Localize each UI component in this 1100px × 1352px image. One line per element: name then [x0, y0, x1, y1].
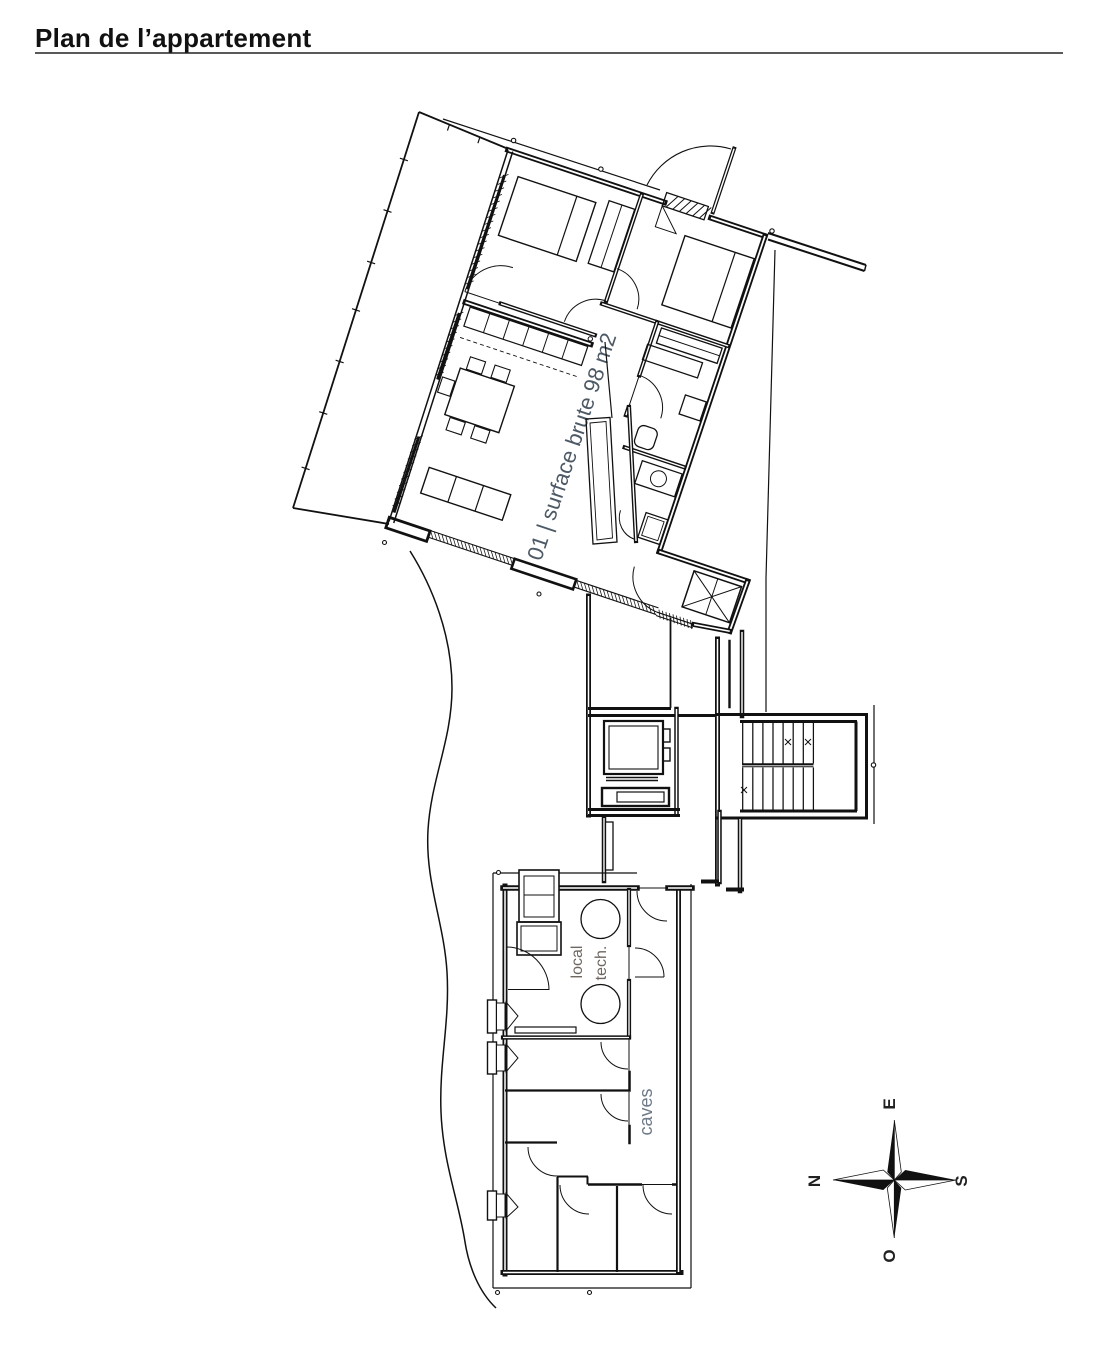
svg-text:E: E	[880, 1098, 899, 1109]
svg-text:O: O	[880, 1249, 899, 1262]
svg-text:N: N	[805, 1175, 824, 1187]
svg-text:S: S	[952, 1175, 971, 1186]
svg-text:local: local	[569, 946, 586, 979]
svg-text:caves: caves	[636, 1088, 656, 1135]
svg-text:tech.: tech.	[593, 946, 610, 981]
svg-text:Plan de l’appartement: Plan de l’appartement	[35, 23, 312, 53]
